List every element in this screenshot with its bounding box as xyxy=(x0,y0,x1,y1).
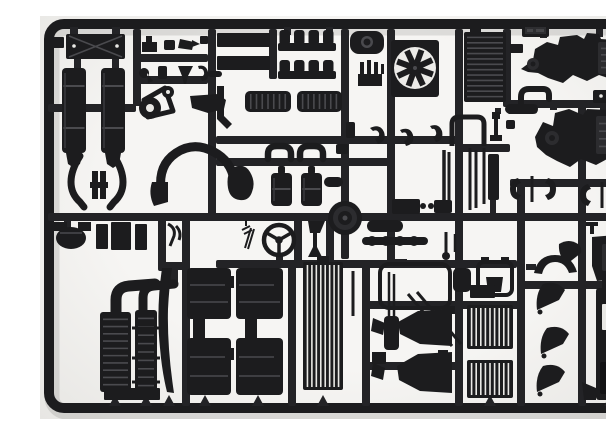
engine-half-upper xyxy=(521,33,606,83)
radiator-tab xyxy=(470,27,481,35)
chassis-plate-lower xyxy=(217,56,270,70)
seat-base-a xyxy=(96,224,108,249)
clamp-foot-a xyxy=(586,222,598,234)
intake-manifold xyxy=(358,60,384,86)
runner-v-8 xyxy=(517,179,525,406)
stub-block-a xyxy=(54,222,67,231)
silencer-box xyxy=(367,220,403,232)
cross-brace-holes xyxy=(72,44,76,48)
cushion-tab-c xyxy=(225,348,234,360)
antenna-knob xyxy=(442,252,450,260)
intercooler-hose xyxy=(161,147,234,190)
engine-lower-rocker xyxy=(596,116,606,154)
cylinder-head-row-lower-knob xyxy=(323,60,334,73)
sprue-id-tag-emboss xyxy=(536,29,544,32)
runner-v-13 xyxy=(288,266,296,406)
seat-cushion-2 xyxy=(236,268,283,319)
runner-v-0 xyxy=(133,29,141,106)
bracket-pipe xyxy=(217,86,232,129)
mirror-arm-a xyxy=(168,224,174,246)
pipe-stub xyxy=(208,71,222,77)
cushion-link-a xyxy=(193,319,205,339)
filter-nipple-left xyxy=(278,166,285,174)
hose-end-fitting xyxy=(150,182,168,206)
cylinder-head-row-upper-knob xyxy=(294,30,305,45)
intake-hose-elbow-right xyxy=(143,284,174,310)
base-plate xyxy=(104,388,160,400)
small-cap xyxy=(200,36,208,44)
air-horn xyxy=(505,104,538,114)
crankshaft-lumps xyxy=(367,236,377,246)
side-skirt-foot xyxy=(582,382,596,400)
runner-v-14 xyxy=(362,266,370,406)
idler-pulley xyxy=(166,90,170,94)
engine-lower-flange xyxy=(549,135,555,141)
linkage-dumbbell xyxy=(428,203,434,209)
seat-base-c xyxy=(135,224,147,250)
crankshaft-lumps xyxy=(409,236,419,246)
armrest-wedge-a xyxy=(371,318,385,335)
sprue-id-tag-emboss xyxy=(527,29,533,32)
seat-cushion-3 xyxy=(187,338,231,395)
grille-tab xyxy=(317,256,329,264)
wiper-arm xyxy=(242,226,250,230)
valve-fitting xyxy=(164,40,175,50)
runner-v-5 xyxy=(455,29,463,406)
sprue-photo: Black plastic model-kit sprue with truck… xyxy=(40,16,606,419)
cylinder-head-row-lower-knob xyxy=(280,60,291,73)
gear-lever xyxy=(490,112,502,141)
crank-pulley xyxy=(146,104,154,112)
runner-stub-3 xyxy=(112,59,119,69)
crankshaft-lumps xyxy=(381,236,391,246)
door-pocket xyxy=(453,268,471,292)
runner-stub-20 xyxy=(490,200,496,214)
linkage-dumbbell xyxy=(420,203,426,209)
chassis-plate-upper xyxy=(217,33,270,47)
cylinder-head-row-upper-knob xyxy=(309,30,320,45)
sprue-gate-5 xyxy=(317,395,329,406)
steering-column xyxy=(308,221,325,257)
sprue-gate-2 xyxy=(163,395,175,406)
intake-hose-left xyxy=(100,312,131,392)
hub-disc xyxy=(343,216,348,221)
cylinder-head-row-lower-knob xyxy=(309,60,320,73)
pump-fitting xyxy=(142,36,157,52)
mudflap-pins xyxy=(542,354,547,359)
cross-brace-holes xyxy=(115,44,119,48)
side-skirt-tab xyxy=(602,280,606,289)
steering-wheel-hub xyxy=(275,236,283,244)
seat-cushion-4 xyxy=(236,338,283,395)
mudflap-b xyxy=(541,327,569,354)
sprue-gate-3 xyxy=(199,395,211,406)
seat-cushion-1 xyxy=(187,268,231,319)
muffler-block-a xyxy=(392,199,420,214)
runner-h-0 xyxy=(136,54,208,62)
runner-v-2 xyxy=(269,29,277,79)
runner-stub-22 xyxy=(526,264,536,270)
frame-cap-b xyxy=(501,257,509,264)
crankshaft-lumps xyxy=(395,236,405,246)
side-skirt-box xyxy=(600,362,606,394)
oil-sump-ring xyxy=(364,39,371,46)
runner-v-1 xyxy=(208,29,216,215)
engine-upper-rocker xyxy=(598,42,606,74)
pipe-clip xyxy=(336,144,348,154)
cushion-tab-a xyxy=(225,276,234,288)
side-skirt-window xyxy=(602,304,606,330)
exhaust-pipe-left xyxy=(71,156,84,207)
tee-fitting xyxy=(158,66,167,79)
turbocharger-body xyxy=(228,166,254,200)
exhaust-elbow-right xyxy=(300,146,323,159)
cylinder-head-row-upper-knob xyxy=(280,30,291,45)
step-recess xyxy=(602,244,606,271)
mirror-arm-b xyxy=(176,226,180,240)
radiator-fan-hub-dot xyxy=(413,66,417,70)
hatch-lid xyxy=(470,285,495,298)
cylinder-head-row-lower-knob xyxy=(294,60,305,73)
breather-tee xyxy=(346,122,355,138)
cushion-link-b xyxy=(245,319,257,339)
seat-base-b xyxy=(111,222,131,250)
runner-h-3 xyxy=(216,136,460,144)
engine-upper-pulley xyxy=(531,62,536,67)
runner-stub-2 xyxy=(74,59,81,69)
front-grille xyxy=(303,262,343,390)
cushion-tab-d xyxy=(274,348,283,360)
sprue-gate-4 xyxy=(252,395,264,406)
mudflap-pins xyxy=(538,392,543,397)
small-bracket-tr xyxy=(510,44,523,53)
nozzle-fitting xyxy=(178,39,200,50)
cushion-tab-b xyxy=(274,276,283,288)
mount-plate-holes xyxy=(599,94,603,98)
frame-cap-a xyxy=(481,257,489,264)
box-small xyxy=(372,352,386,364)
runner-stub-8 xyxy=(550,102,557,110)
corner-bracket xyxy=(52,37,64,48)
cylinder-head-row-upper-knob xyxy=(323,30,334,45)
door-capsule xyxy=(384,316,399,350)
leaf-spring-panel xyxy=(488,154,499,200)
bracket-bl xyxy=(442,306,455,332)
mudflap-c xyxy=(537,365,565,392)
stub-block-b xyxy=(78,222,91,231)
runner-h-4 xyxy=(216,158,392,166)
exhaust-elbow-left xyxy=(268,146,291,159)
pipe-joiner xyxy=(90,171,108,199)
filter-nipple-right xyxy=(308,166,315,174)
runner-h-1 xyxy=(136,76,208,84)
sprue-illustration xyxy=(40,16,606,419)
small-silencer xyxy=(324,177,343,187)
mudflap-pins xyxy=(538,310,543,315)
shift-knob xyxy=(506,120,515,129)
